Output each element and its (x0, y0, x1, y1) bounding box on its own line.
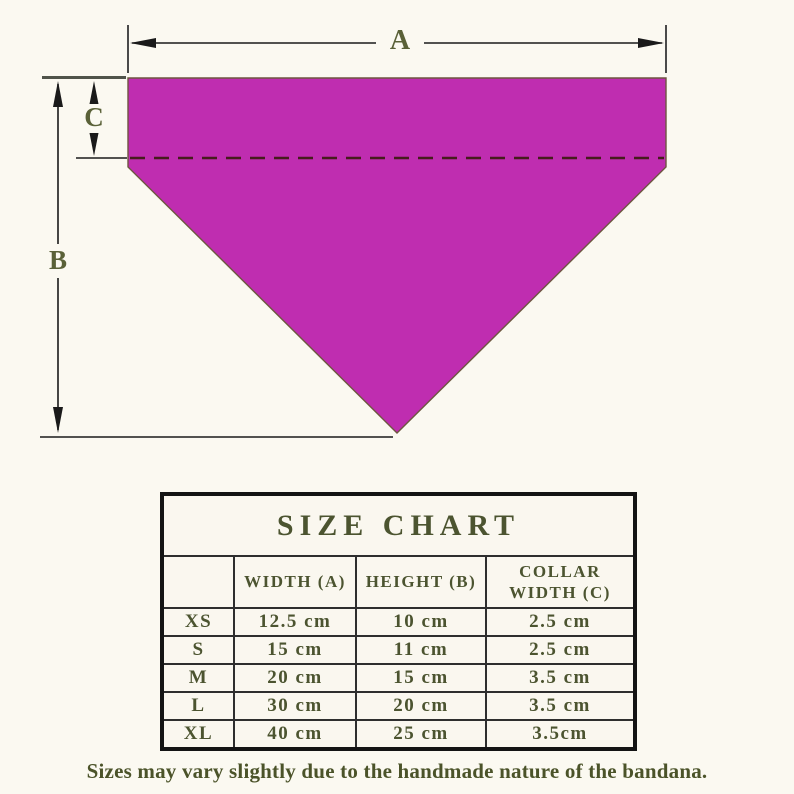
row-width-value: 30 cm (234, 692, 356, 720)
width-arrowhead-right (638, 38, 664, 48)
row-size-label: XS (164, 608, 234, 636)
size-chart-table: SIZE CHART WIDTH (A) HEIGHT (B) COLLAR W… (160, 492, 637, 751)
row-size-label: M (164, 664, 234, 692)
row-height-value: 20 cm (356, 692, 486, 720)
header-height: HEIGHT (B) (356, 557, 486, 608)
header-width: WIDTH (A) (234, 557, 356, 608)
row-width-value: 15 cm (234, 636, 356, 664)
row-width-value: 20 cm (234, 664, 356, 692)
width-dimension-label: A (378, 27, 422, 55)
table-row: M 20 cm 15 cm 3.5 cm (164, 664, 633, 692)
header-collar: COLLAR WIDTH (C) (486, 557, 633, 608)
collar-arrowhead-up (90, 81, 99, 104)
dimension-diagram (0, 0, 794, 470)
collar-dimension-label: C (79, 104, 109, 131)
collar-arrowhead-down (90, 133, 99, 156)
row-collar-value: 3.5 cm (486, 664, 633, 692)
table-row: L 30 cm 20 cm 3.5 cm (164, 692, 633, 720)
bandana-size-guide: A C B SIZE CHART WIDTH (A) HEIGHT (B) CO… (0, 0, 794, 794)
row-width-value: 40 cm (234, 720, 356, 747)
row-collar-value: 2.5 cm (486, 608, 633, 636)
row-collar-value: 3.5 cm (486, 692, 633, 720)
size-chart-title: SIZE CHART (164, 496, 633, 557)
row-height-value: 11 cm (356, 636, 486, 664)
width-arrowhead-left (130, 38, 156, 48)
row-size-label: L (164, 692, 234, 720)
row-collar-value: 2.5 cm (486, 636, 633, 664)
row-size-label: XL (164, 720, 234, 747)
row-collar-value: 3.5cm (486, 720, 633, 747)
table-row: XL 40 cm 25 cm 3.5cm (164, 720, 633, 747)
bandana-shape (128, 78, 666, 433)
table-row: XS 12.5 cm 10 cm 2.5 cm (164, 608, 633, 636)
height-arrowhead-down (53, 407, 63, 433)
row-height-value: 25 cm (356, 720, 486, 747)
row-height-value: 15 cm (356, 664, 486, 692)
size-disclaimer-note: Sizes may vary slightly due to the handm… (0, 759, 794, 784)
row-width-value: 12.5 cm (234, 608, 356, 636)
row-size-label: S (164, 636, 234, 664)
height-arrowhead-up (53, 81, 63, 107)
height-dimension-label: B (43, 247, 73, 274)
size-chart-grid: WIDTH (A) HEIGHT (B) COLLAR WIDTH (C) XS… (164, 557, 633, 747)
table-header-row: WIDTH (A) HEIGHT (B) COLLAR WIDTH (C) (164, 557, 633, 608)
row-height-value: 10 cm (356, 608, 486, 636)
header-size (164, 557, 234, 608)
table-row: S 15 cm 11 cm 2.5 cm (164, 636, 633, 664)
